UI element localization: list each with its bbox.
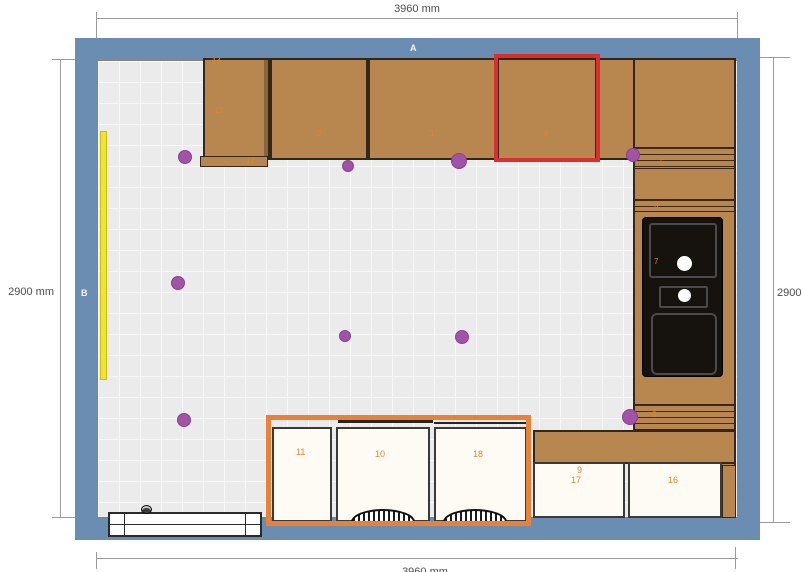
cabinet-number: 5 (660, 158, 664, 167)
sink-drainer (651, 313, 717, 375)
dimension-right-line (773, 57, 774, 523)
right-run-slatted-bottom (635, 404, 734, 430)
dimension-bottom-line (97, 558, 738, 559)
ceiling-light[interactable] (622, 409, 638, 425)
dimension-left-tick-top (52, 59, 75, 60)
dimension-right-tick-bottom (757, 522, 790, 523)
dimension-top-line (97, 18, 738, 19)
faucet-hole (678, 289, 691, 302)
selected-cabinet-highlight (494, 54, 600, 162)
cabinet-number: 6 (654, 201, 658, 210)
dimension-left-label: 2900 mm (6, 286, 54, 298)
dimension-top-tick-left (96, 12, 97, 38)
cabinet-number: 1 (430, 129, 434, 138)
dimension-bottom-label: 3960 mm (380, 566, 470, 572)
ceiling-light[interactable] (626, 148, 640, 162)
floor-plan-canvas: 3960 mm 2900 mm 2900 3960 mm A B 14 13 1… (0, 0, 803, 572)
cabinet-number: 9 (577, 465, 582, 475)
wall-cabinet-1[interactable] (270, 58, 368, 160)
ceiling-light[interactable] (455, 330, 469, 344)
wall-label-a: A (410, 43, 417, 53)
wall-cabinet-corner[interactable] (597, 58, 635, 160)
cabinet-number: 7 (654, 257, 658, 266)
dimension-right-tick-top (757, 57, 790, 58)
base-cabinet-16[interactable] (628, 462, 722, 518)
cabinet-number: 14 (212, 57, 221, 66)
ceiling-light[interactable] (177, 413, 191, 427)
wall-cabinet-2[interactable] (368, 58, 497, 160)
island-selection-border (266, 415, 531, 526)
base-right-filler[interactable] (722, 465, 736, 518)
right-run-slatted-mid (635, 199, 734, 212)
cabinet-number: 16 (668, 475, 678, 485)
ceiling-light[interactable] (339, 330, 351, 342)
right-run-slatted-top (635, 147, 734, 169)
cabinet-number: 13 (214, 106, 223, 115)
ceiling-light[interactable] (171, 276, 185, 290)
ceiling-light[interactable] (342, 160, 354, 172)
dimension-left-line (60, 60, 61, 518)
radiator-valve (141, 505, 152, 514)
dimension-right-label: 2900 (777, 287, 803, 299)
dimension-top-label: 3960 mm (357, 3, 477, 15)
cabinet-number: 12 (246, 156, 255, 165)
wall-label-b: B (81, 288, 88, 298)
base-right-counter[interactable] (533, 430, 736, 464)
radiator-segment-line (110, 524, 260, 525)
radiator[interactable] (108, 512, 262, 537)
window-marker-strip[interactable] (100, 131, 107, 380)
cabinet-number: 2 (317, 129, 321, 138)
sink-unit[interactable] (642, 217, 723, 377)
faucet-hole (677, 256, 692, 271)
dimension-top-tick-right (737, 12, 738, 38)
cabinet-number: 17 (571, 475, 581, 485)
dimension-left-tick-bottom (52, 517, 75, 518)
cabinet-number: 8 (652, 410, 656, 419)
ceiling-light[interactable] (451, 153, 467, 169)
dimension-bottom-tick-right (735, 547, 736, 569)
dimension-bottom-tick-left (96, 552, 97, 569)
ceiling-light[interactable] (178, 150, 192, 164)
tall-cabinet-plinth[interactable] (200, 156, 268, 167)
